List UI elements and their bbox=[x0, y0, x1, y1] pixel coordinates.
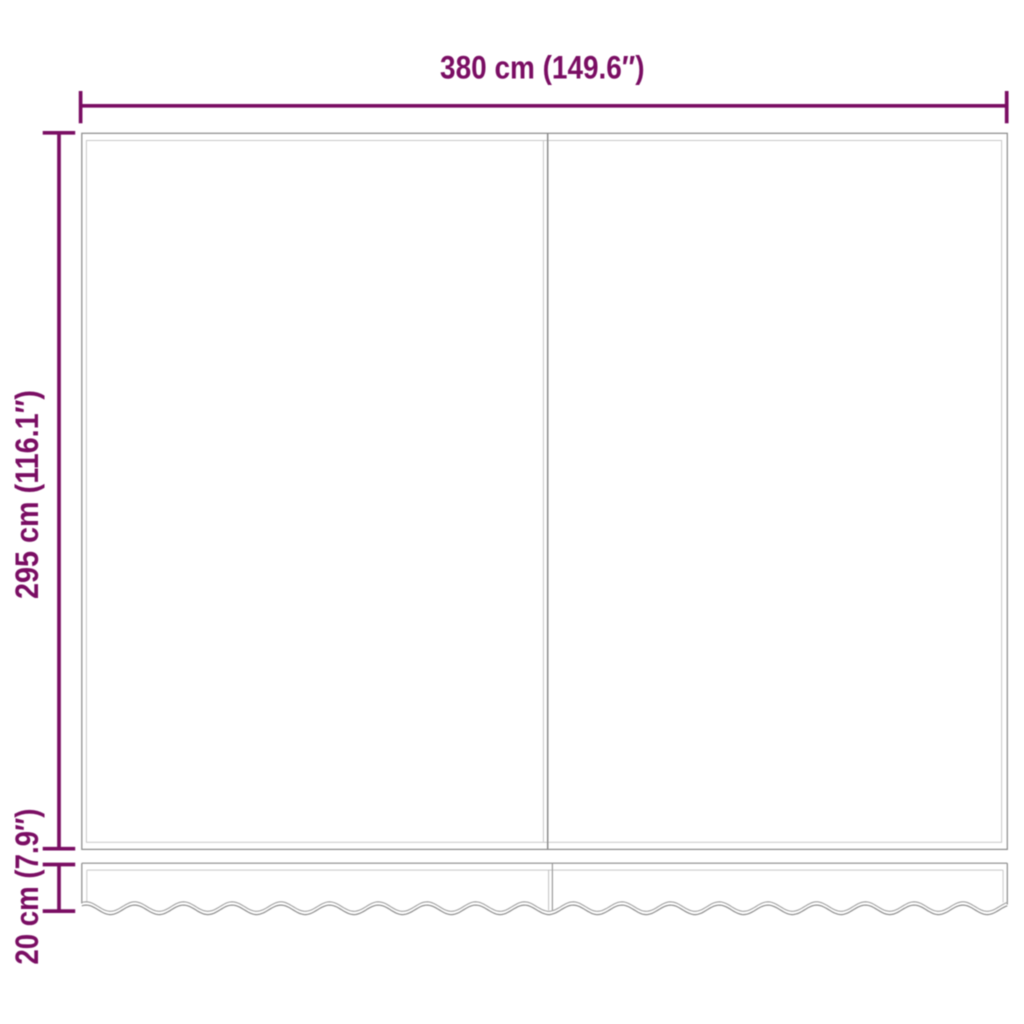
svg-text:295 cm (116.1″): 295 cm (116.1″) bbox=[9, 390, 45, 599]
svg-text:380 cm (149.6″): 380 cm (149.6″) bbox=[440, 49, 645, 85]
svg-text:20 cm (7.9″): 20 cm (7.9″) bbox=[9, 809, 45, 965]
